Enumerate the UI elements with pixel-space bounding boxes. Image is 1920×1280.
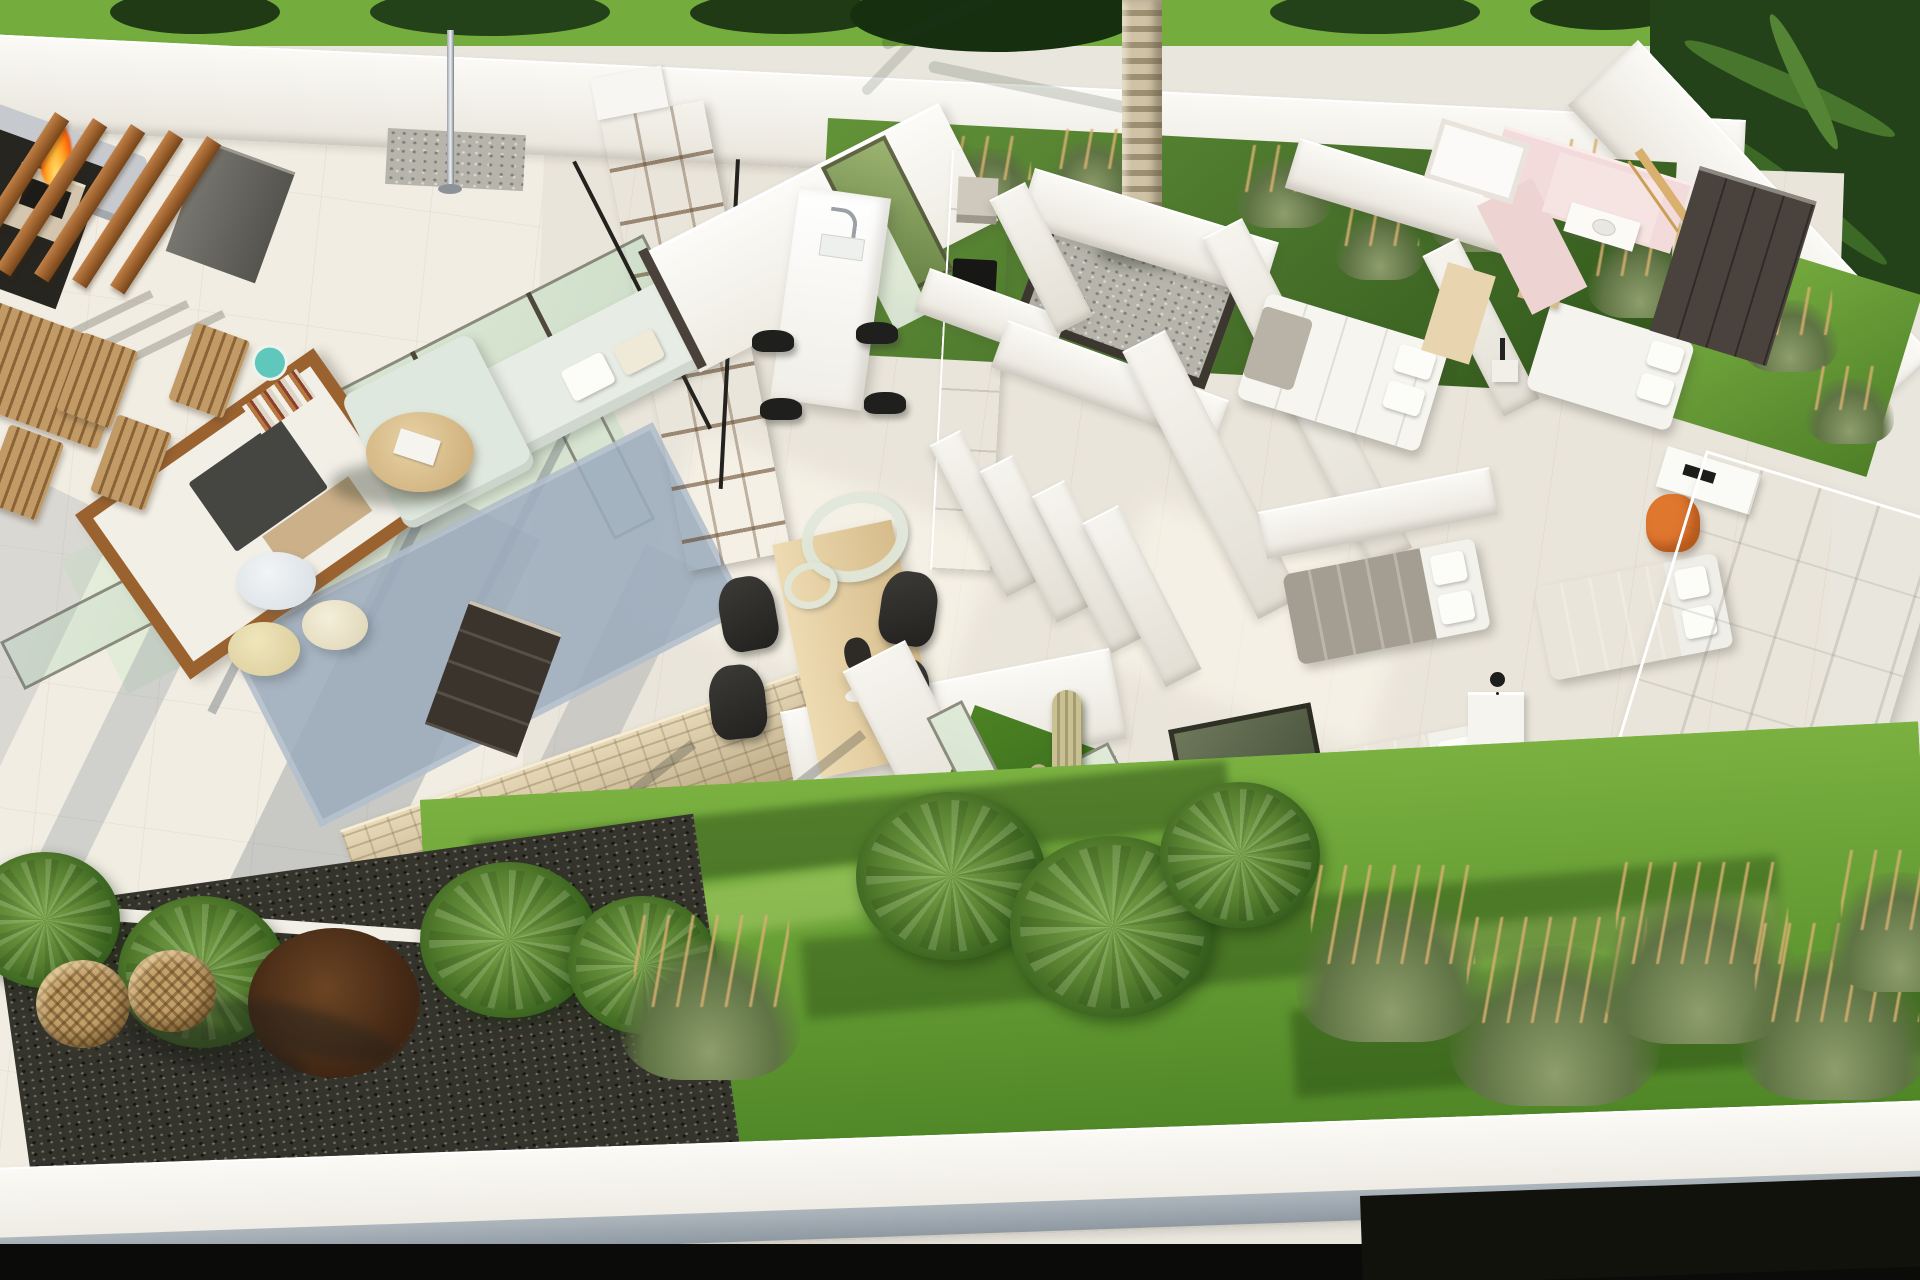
bar-stool: [856, 322, 898, 344]
shower-base: [438, 184, 462, 194]
nightstand: [1492, 360, 1518, 382]
twin-nightstand: [1468, 692, 1524, 750]
bar-stool: [752, 330, 794, 352]
island-faucet: [828, 207, 860, 239]
villa-render: [0, 0, 1920, 1280]
ornamental-grass: [1830, 872, 1920, 992]
basin: [1590, 216, 1618, 238]
shower-pole: [447, 30, 454, 188]
pouf: [302, 600, 368, 650]
pouf: [236, 552, 316, 610]
island-sink: [819, 233, 866, 261]
bedside-lamp: [1500, 338, 1505, 360]
palm-shrub: [420, 862, 598, 1018]
magazine: [393, 428, 441, 466]
wicker-lantern: [36, 960, 130, 1048]
round-coffee-table: [366, 412, 474, 492]
sphere-lamp: [1490, 672, 1505, 687]
bar-stool: [864, 392, 906, 414]
pouf: [228, 622, 300, 676]
wicker-lantern: [128, 950, 216, 1032]
ornamental-grass: [620, 940, 800, 1080]
bar-stool: [760, 398, 802, 420]
fan-palm: [1160, 782, 1320, 928]
grass-tuft: [1806, 378, 1894, 444]
timber-slat-screen: [55, 112, 315, 297]
gravel-patch: [385, 128, 526, 191]
